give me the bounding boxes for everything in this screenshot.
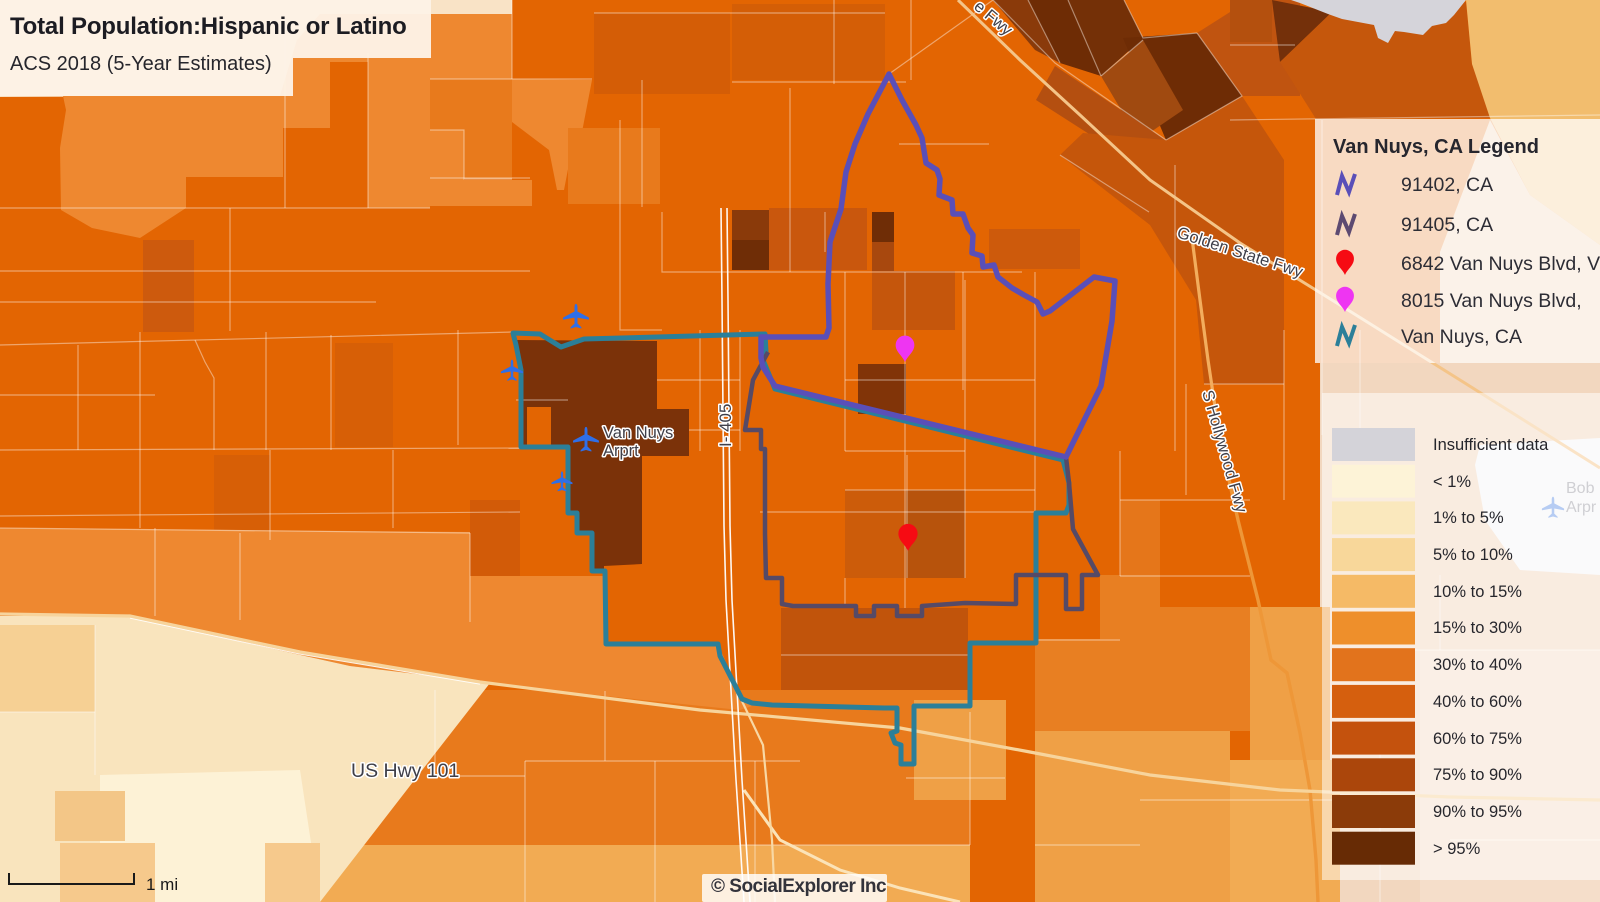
svg-text:US Hwy 101: US Hwy 101	[351, 760, 459, 782]
svg-text:Van Nuys, CA: Van Nuys, CA	[1401, 326, 1522, 348]
svg-text:91402, CA: 91402, CA	[1401, 174, 1493, 196]
svg-text:10% to 15%: 10% to 15%	[1433, 583, 1522, 601]
svg-text:8015 Van Nuys Blvd,: 8015 Van Nuys Blvd,	[1401, 290, 1582, 312]
svg-text:Insufficient data: Insufficient data	[1433, 436, 1549, 454]
svg-text:90% to 95%: 90% to 95%	[1433, 803, 1522, 821]
svg-text:Van Nuys, CA Legend: Van Nuys, CA Legend	[1333, 136, 1539, 158]
svg-text:I- 405: I- 405	[716, 404, 735, 447]
svg-text:40% to 60%: 40% to 60%	[1433, 693, 1522, 711]
svg-text:5% to 10%: 5% to 10%	[1433, 546, 1513, 564]
svg-text:> 95%: > 95%	[1433, 840, 1481, 858]
svg-text:< 1%: < 1%	[1433, 473, 1471, 491]
svg-text:15% to 30%: 15% to 30%	[1433, 619, 1522, 637]
svg-text:75% to 90%: 75% to 90%	[1433, 766, 1522, 784]
svg-text:Van Nuys: Van Nuys	[603, 424, 673, 442]
svg-text:Arprt: Arprt	[603, 442, 639, 460]
svg-text:6842 Van Nuys Blvd, V: 6842 Van Nuys Blvd, V	[1401, 253, 1600, 275]
svg-text:60% to 75%: 60% to 75%	[1433, 730, 1522, 748]
svg-text:91405, CA: 91405, CA	[1401, 214, 1493, 236]
svg-text:1% to 5%: 1% to 5%	[1433, 509, 1504, 527]
svg-text:30% to 40%: 30% to 40%	[1433, 656, 1522, 674]
svg-text:1 mi: 1 mi	[146, 875, 178, 894]
